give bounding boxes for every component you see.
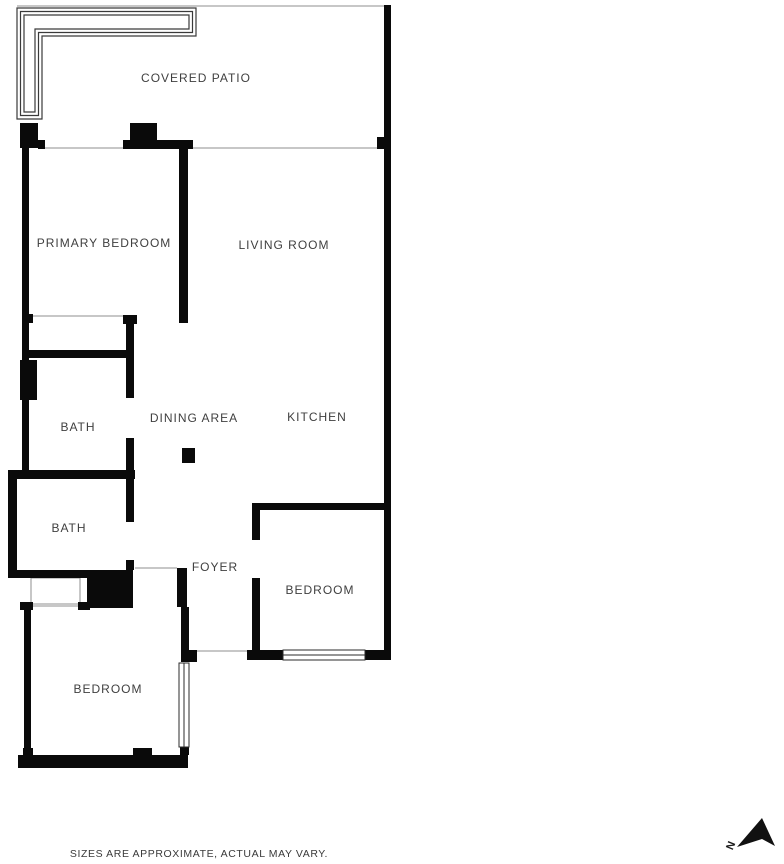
wall-segment — [22, 358, 29, 470]
wall-segment — [252, 510, 260, 540]
wall-segment — [20, 123, 38, 148]
window — [179, 663, 189, 747]
windows — [179, 650, 365, 747]
wall-segment — [123, 315, 137, 324]
wall-segment — [384, 5, 391, 660]
wall-segment — [22, 314, 33, 323]
railing-outer-line — [17, 8, 196, 119]
wall-segment — [180, 747, 189, 755]
wall-segment — [181, 607, 189, 650]
railing-inner-line — [24, 15, 189, 112]
room-label-foyer: FOYER — [192, 560, 238, 574]
window — [283, 650, 365, 660]
wall-segment — [20, 602, 33, 610]
room-label-living-room: LIVING ROOM — [238, 238, 329, 252]
wall-segment — [38, 140, 45, 149]
wall-segment — [133, 748, 152, 755]
wall-segment — [177, 568, 187, 607]
wall-segment — [18, 755, 188, 768]
north-arrow-letter: N — [723, 839, 737, 851]
wall-segment — [181, 650, 197, 662]
room-label-bath-lower: BATH — [51, 521, 86, 535]
patio-railing — [17, 8, 196, 119]
wall-segment — [126, 324, 134, 398]
wall-segment — [24, 610, 31, 755]
north-arrow-shape — [737, 818, 775, 847]
wall-segment — [8, 470, 135, 479]
wall-segment — [179, 147, 188, 323]
wall-segment — [377, 137, 384, 149]
room-label-covered-patio: COVERED PATIO — [141, 71, 251, 85]
room-label-bedroom-lower: BEDROOM — [73, 682, 142, 696]
room-label-bath-upper: BATH — [60, 420, 95, 434]
bedroom-closet — [31, 578, 80, 604]
room-label-kitchen: KITCHEN — [287, 410, 347, 424]
wall-segment — [252, 503, 391, 510]
north-arrow-icon: N — [723, 818, 775, 851]
kitchen-island-post — [182, 448, 195, 463]
railing-middle-line — [21, 12, 193, 116]
room-label-dining-area: DINING AREA — [150, 411, 238, 425]
wall-segment — [8, 479, 17, 570]
wall-segment — [8, 570, 87, 578]
wall-segment — [78, 602, 90, 610]
closet-block — [87, 570, 133, 608]
floor-plan-drawing: COVERED PATIO PRIMARY BEDROOM LIVING ROO… — [0, 0, 784, 864]
wall-segment — [130, 123, 157, 141]
thin-lines — [17, 6, 384, 651]
floor-plan: COVERED PATIO PRIMARY BEDROOM LIVING ROO… — [0, 0, 784, 864]
disclaimer-text: SIZES ARE APPROXIMATE, ACTUAL MAY VARY. — [70, 848, 328, 860]
room-label-bedroom-right: BEDROOM — [285, 583, 354, 597]
wall-segment — [126, 438, 134, 470]
wall-segment — [126, 479, 134, 522]
wall-segment — [252, 578, 260, 650]
wall-segment — [22, 350, 128, 358]
wall-segment — [247, 650, 283, 660]
wall-segment — [126, 560, 134, 570]
wall-segment — [365, 650, 391, 660]
room-label-primary-bedroom: PRIMARY BEDROOM — [37, 236, 172, 250]
wall-segment — [23, 748, 33, 755]
